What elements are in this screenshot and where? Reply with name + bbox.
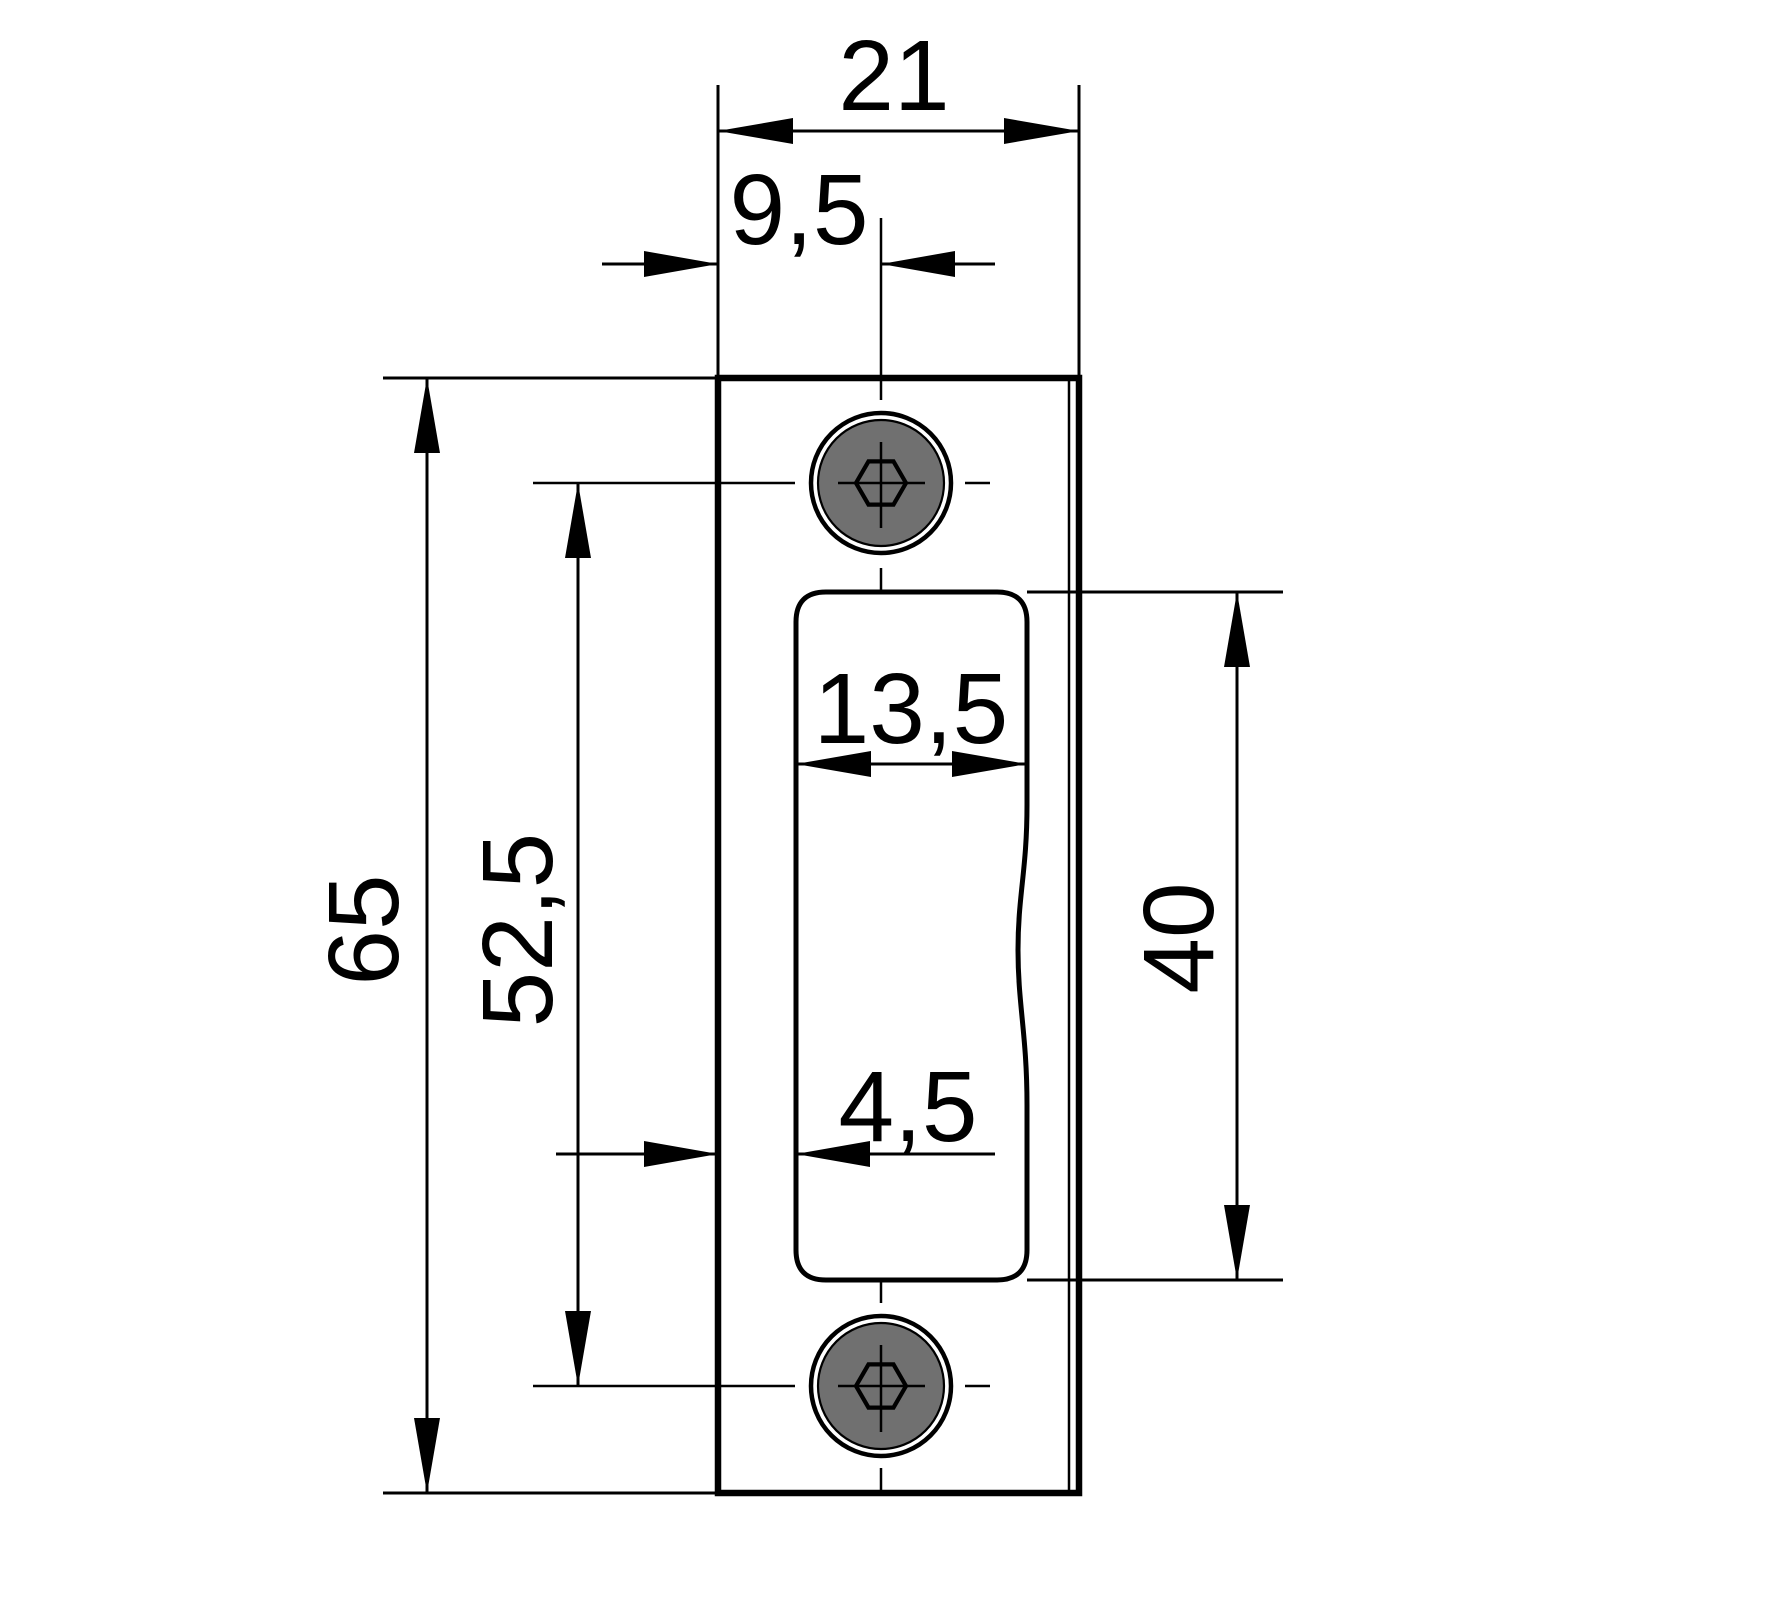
arrowhead-icon	[644, 251, 718, 277]
dimension-cutout-offset: 4,5	[556, 1051, 995, 1167]
arrowhead-icon	[565, 483, 591, 558]
arrowhead-icon	[565, 1311, 591, 1386]
dimension-label: 13,5	[814, 653, 1009, 765]
screw-hole-bottom	[533, 1280, 990, 1491]
dimension-label: 9,5	[729, 154, 868, 266]
dimension-screw-spacing: 52,5	[462, 483, 591, 1386]
arrowhead-icon	[1224, 592, 1250, 667]
dimension-label: 40	[1123, 882, 1235, 993]
dimension-label: 65	[308, 874, 420, 985]
dimension-label: 21	[838, 20, 949, 132]
arrowhead-icon	[1004, 118, 1079, 144]
arrowhead-icon	[1224, 1205, 1250, 1280]
drawing-page: 21 9,5 13,5 4,5 65 52,5	[0, 0, 1767, 1598]
arrowhead-icon	[644, 1141, 718, 1167]
arrowhead-icon	[414, 378, 440, 453]
arrowhead-icon	[718, 118, 793, 144]
arrowhead-icon	[881, 251, 955, 277]
dimension-label: 4,5	[838, 1051, 977, 1163]
dimension-cutout-width: 13,5	[796, 653, 1027, 777]
screw-hole-top	[533, 218, 990, 592]
dimension-cutout-height: 40	[1027, 592, 1283, 1280]
dimension-screw-axis-offset: 9,5	[602, 154, 995, 277]
arrowhead-icon	[414, 1418, 440, 1493]
technical-drawing: 21 9,5 13,5 4,5 65 52,5	[0, 0, 1767, 1598]
dimension-label: 52,5	[462, 833, 574, 1028]
